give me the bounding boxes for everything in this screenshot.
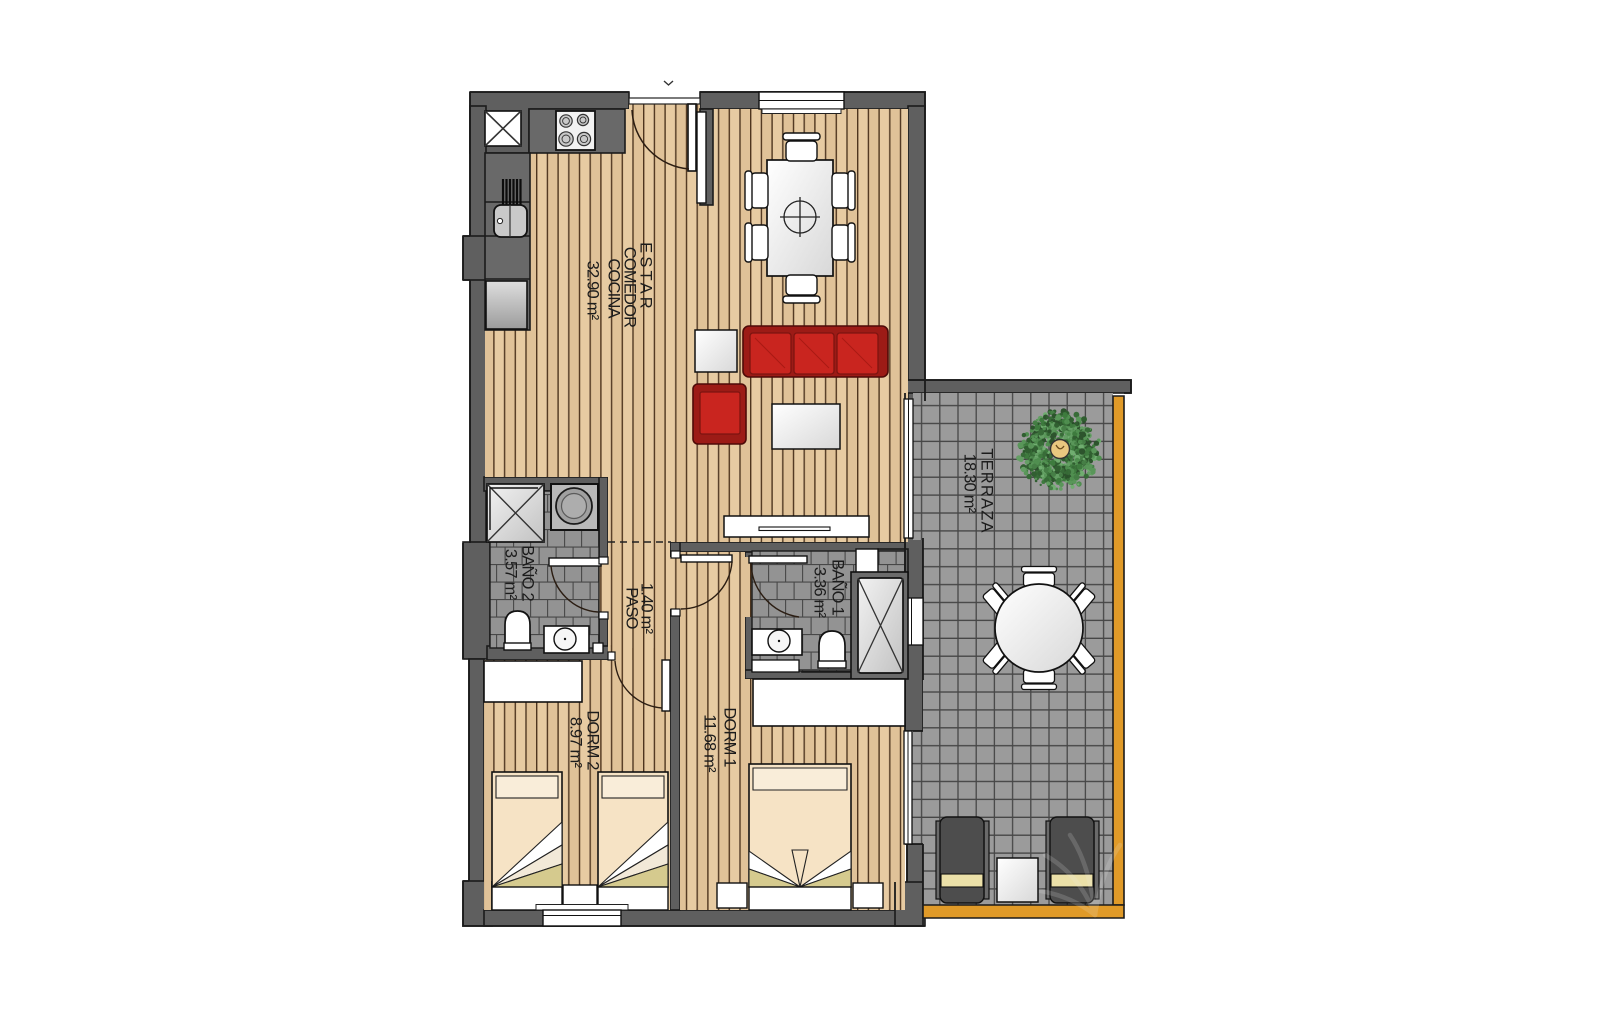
svg-text:DORM 2: DORM 2 [584, 710, 602, 770]
svg-text:3.57 m²: 3.57 m² [502, 549, 520, 601]
svg-text:BAÑO 1: BAÑO 1 [829, 559, 849, 615]
svg-text:DORM 1: DORM 1 [721, 707, 739, 767]
svg-text:3.36 m²: 3.36 m² [811, 567, 829, 619]
svg-text:8.97 m²: 8.97 m² [567, 717, 585, 769]
svg-text:COCINA: COCINA [605, 258, 623, 318]
svg-text:18.30 m²: 18.30 m² [961, 454, 979, 514]
svg-text:TERRAZA: TERRAZA [978, 448, 996, 533]
svg-text:BAÑO 2: BAÑO 2 [519, 545, 539, 601]
svg-text:PASO: PASO [623, 587, 641, 629]
svg-text:11.68 m²: 11.68 m² [701, 714, 719, 773]
svg-text:32.90 m²: 32.90 m² [584, 261, 602, 321]
